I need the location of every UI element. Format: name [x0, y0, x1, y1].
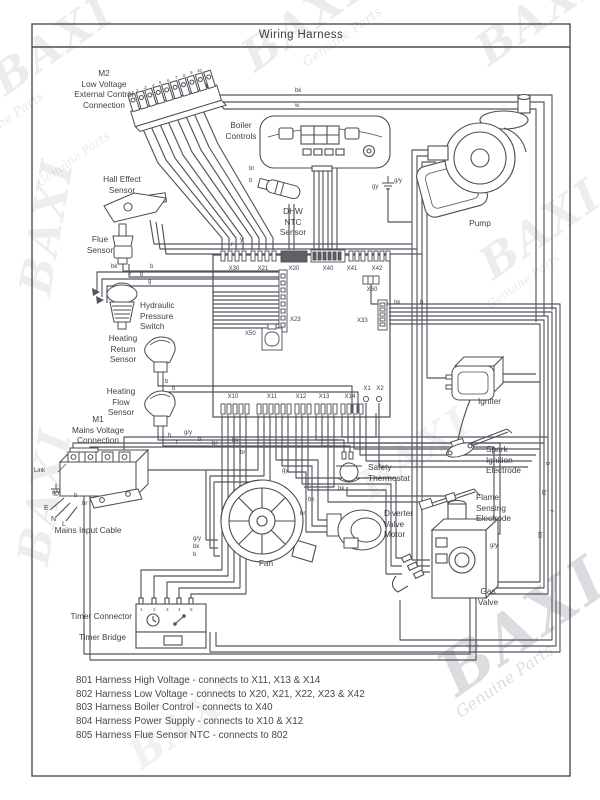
- label-earth-e: E: [44, 505, 54, 514]
- wire-colour-label: br: [240, 450, 245, 456]
- wire-colour-label: b: [420, 300, 423, 306]
- wire-colour-label: bk: [338, 486, 344, 492]
- label-x42: X42: [365, 266, 389, 274]
- terminal-number: 10: [197, 68, 202, 73]
- wire-colour-label: r: [231, 242, 233, 248]
- legend-line: 801 Harness High Voltage - connects to X…: [76, 674, 365, 688]
- terminal-number: 4: [152, 83, 155, 88]
- wire-colour-label: g/y: [490, 543, 498, 549]
- wiring-harness-page: BAXIne PartsBAXIGenuine PartsBAXIBAXIGen…: [0, 0, 600, 800]
- wire-colour-label: br: [300, 511, 305, 517]
- label-x2: X2: [373, 386, 387, 394]
- label-x20: X20: [282, 266, 306, 274]
- wire-colour-label: b: [140, 272, 143, 278]
- terminal-number: 3: [144, 85, 147, 90]
- wire-colour-label: bk: [232, 438, 238, 444]
- label-x12: X12: [289, 394, 313, 402]
- terminal-number: 5: [190, 607, 193, 612]
- wire-colour-label: g/y: [394, 178, 402, 184]
- legend-line: 804 Harness Power Supply - connects to X…: [76, 715, 365, 729]
- wire-colour-label: b: [544, 462, 550, 465]
- terminal-number: 8: [183, 73, 186, 78]
- label-gas-valve: Gas Valve: [466, 586, 510, 607]
- label-x60: X60: [360, 287, 384, 295]
- wire-colour-label: bk: [536, 532, 542, 538]
- page-title: Wiring Harness: [32, 29, 570, 41]
- label-hydraulic-pressure-switch: Hydraulic Pressure Switch: [140, 300, 216, 332]
- wire-colour-label: b: [150, 264, 153, 270]
- wire-colour-label: bk: [295, 88, 301, 94]
- wire-colour-label: b: [193, 552, 196, 558]
- wire-colour-label: br: [540, 490, 546, 495]
- wire-colour-label: bk: [394, 300, 400, 306]
- terminal-number: 5: [159, 80, 162, 85]
- wire-colour-label: bk: [308, 497, 314, 503]
- label-x23: X23: [290, 317, 310, 325]
- wire-colour-label: gy: [372, 184, 378, 190]
- wire-colour-label: b: [198, 437, 201, 443]
- terminal-number: 4: [178, 607, 181, 612]
- label-spark-ignition-electrode: Spark Ignition Electrode: [486, 444, 552, 476]
- label-x13: X13: [312, 394, 336, 402]
- label-live-l: L: [62, 521, 72, 530]
- wire-colour-label: bk: [193, 544, 199, 550]
- wire-colour-label: g/y: [52, 490, 60, 496]
- terminal-number: 1: [140, 607, 143, 612]
- terminal-number: 2: [136, 88, 139, 93]
- wire-colour-label: b: [165, 379, 168, 385]
- wire-colour-label: y: [240, 237, 243, 243]
- wire-colour-label: b: [172, 386, 175, 392]
- label-x50: X50: [245, 331, 265, 339]
- label-link: Link: [34, 468, 60, 476]
- label-mains-input-cable: Mains Input Cable: [36, 525, 140, 536]
- label-boiler-controls: Boiler Controls: [210, 120, 272, 141]
- label-x33: X33: [357, 318, 377, 326]
- wire-colour-label: r: [130, 271, 132, 277]
- label-x11: X11: [260, 394, 284, 402]
- label-x1: X1: [360, 386, 374, 394]
- label-heating-return-sensor: Heating Return Sensor: [88, 333, 158, 365]
- label-x40: X40: [316, 266, 340, 274]
- terminal-number: 2: [153, 607, 156, 612]
- label-timer-connector: Timer Connector: [40, 611, 132, 622]
- terminal-number: 6: [167, 78, 170, 83]
- wire-colour-label: g/y: [184, 430, 192, 436]
- label-m1-connection: M1 Mains Voltage Connection: [48, 414, 148, 446]
- wire-colour-label: w: [295, 103, 299, 109]
- wire-colour-label: b: [249, 178, 252, 184]
- text-overlay: Wiring Harness 801 Harness High Voltage …: [0, 0, 600, 800]
- label-flame-sensing-electrode: Flame Sensing Electrode: [476, 492, 542, 524]
- wire-colour-label: b: [168, 433, 171, 439]
- legend-line: 802 Harness Low Voltage - connects to X2…: [76, 688, 365, 702]
- label-hall-effect-sensor: Hall Effect Sensor: [82, 174, 162, 195]
- label-fan: Fan: [246, 558, 286, 569]
- wire-colour-label: gy: [282, 468, 288, 474]
- label-x30: X30: [222, 266, 246, 274]
- wire-colour-label: br: [249, 166, 254, 172]
- label-timer-bridge: Timer Bridge: [40, 632, 126, 643]
- wire-colour-label: b: [74, 493, 77, 499]
- harness-legend: 801 Harness High Voltage - connects to X…: [76, 674, 365, 743]
- terminal-number: 3: [166, 607, 169, 612]
- terminal-number: 7: [175, 75, 178, 80]
- terminal-number: 9: [190, 70, 193, 75]
- label-safety-thermostat: Safety Thermostat: [368, 462, 446, 483]
- label-diverter-valve-motor: Diverter Valve Motor: [384, 508, 448, 540]
- label-dhw-ntc-sensor: DHW NTC Sensor: [264, 206, 322, 238]
- wire-colour-label: r: [176, 440, 178, 446]
- label-x21: X21: [251, 266, 275, 274]
- wire-colour-label: g: [148, 279, 151, 285]
- legend-line: 803 Harness Boiler Control - connects to…: [76, 701, 365, 715]
- wire-colour-label: br: [82, 501, 87, 507]
- label-x10: X10: [221, 394, 245, 402]
- wire-colour-label: br: [212, 441, 217, 447]
- legend-line: 805 Harness Flue Sensor NTC - connects t…: [76, 729, 365, 743]
- label-x41: X41: [340, 266, 364, 274]
- label-x14: X14: [338, 394, 362, 402]
- label-pump: Pump: [452, 218, 508, 229]
- terminal-number: 1: [128, 90, 131, 95]
- wire-colour-label: bk: [111, 264, 117, 270]
- label-flue-sensor: Flue Sensor: [68, 234, 132, 255]
- label-igniter: Igniter: [478, 396, 522, 407]
- wire-colour-label: g/y: [193, 536, 201, 542]
- label-neutral-n: N: [51, 516, 61, 525]
- wire-colour-label: r: [548, 510, 554, 512]
